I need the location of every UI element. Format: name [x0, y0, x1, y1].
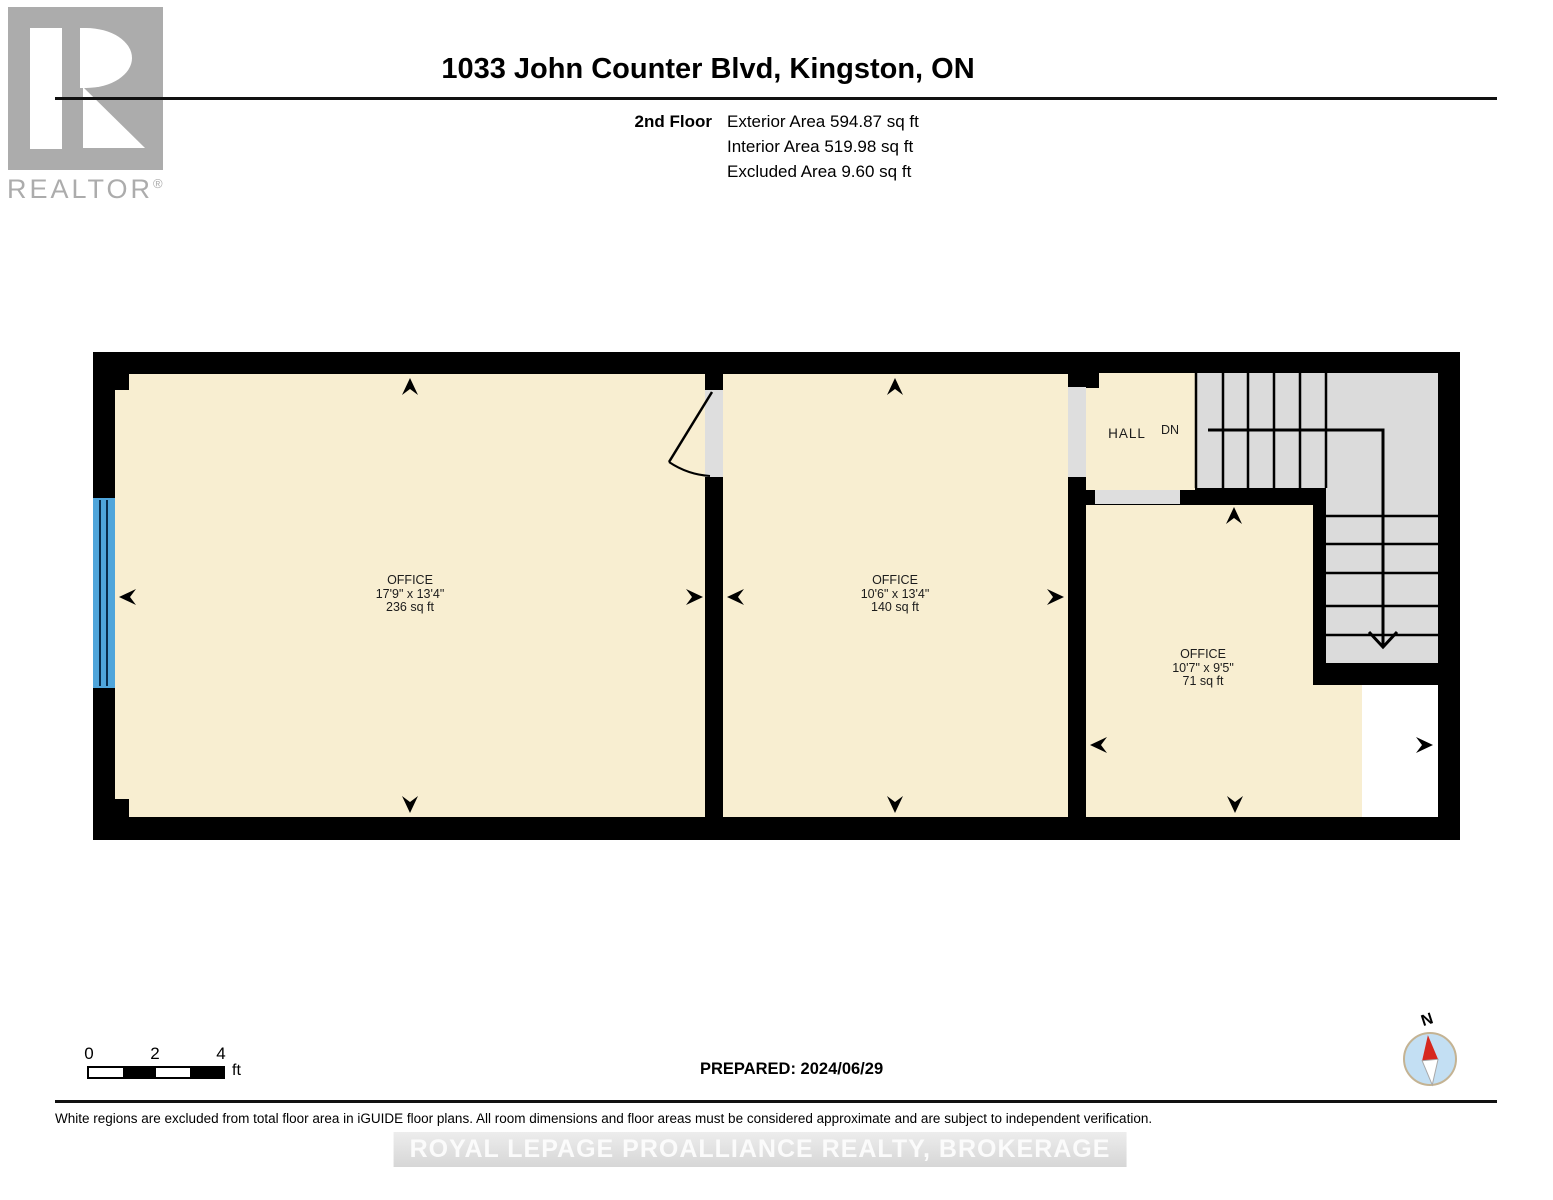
hall-label: HALL	[1108, 426, 1146, 441]
floor-plan: OFFICE 17'9" x 13'4" 236 sq ft OFFICE 10…	[93, 352, 1460, 840]
excluded-area: Excluded Area 9.60 sq ft	[727, 159, 919, 184]
room-dimensions: 10'7" x 9'5"	[1172, 662, 1234, 676]
footer-divider	[55, 1100, 1497, 1103]
stair-direction-line	[1208, 430, 1383, 645]
floor-label: 2nd Floor	[560, 109, 712, 134]
room-name: OFFICE	[861, 574, 930, 588]
window-pane-lines	[100, 500, 107, 686]
realtor-wordmark: REALTOR®	[7, 174, 163, 205]
scale-tick-4: 4	[216, 1044, 225, 1064]
scale-tick-0: 0	[84, 1044, 93, 1064]
office1-label: OFFICE 17'9" x 13'4" 236 sq ft	[376, 574, 445, 615]
area-summary: Exterior Area 594.87 sq ft Interior Area…	[727, 109, 919, 184]
office3-label: OFFICE 10'7" x 9'5" 71 sq ft	[1172, 648, 1234, 689]
room-area: 71 sq ft	[1172, 675, 1234, 689]
room-area: 140 sq ft	[861, 601, 930, 615]
registered-trademark: ®	[153, 176, 163, 191]
room-name: OFFICE	[376, 574, 445, 588]
exterior-area: Exterior Area 594.87 sq ft	[727, 109, 919, 134]
compass-north-label: N	[1419, 1010, 1435, 1030]
office2-label: OFFICE 10'6" x 13'4" 140 sq ft	[861, 574, 930, 615]
scale-tick-2: 2	[150, 1044, 159, 1064]
brokerage-watermark: ROYAL LEPAGE PROALLIANCE REALTY, BROKERA…	[394, 1132, 1127, 1167]
plan-linework	[93, 352, 1460, 840]
prepared-date: PREPARED: 2024/06/29	[700, 1060, 883, 1079]
header-divider	[55, 97, 1497, 100]
door-leaf	[669, 392, 712, 462]
page-title: 1033 John Counter Blvd, Kingston, ON	[441, 53, 974, 86]
compass-icon: N	[1398, 1006, 1464, 1090]
room-area: 236 sq ft	[376, 601, 445, 615]
scale-bar	[87, 1066, 225, 1079]
disclaimer-text: White regions are excluded from total fl…	[55, 1111, 1152, 1126]
stairs-dn-label: DN	[1161, 423, 1179, 437]
room-dimensions: 10'6" x 13'4"	[861, 588, 930, 602]
scale-unit-label: ft	[232, 1062, 241, 1080]
realtor-logo-icon	[8, 7, 163, 170]
realtor-r-glyph	[8, 7, 163, 170]
interior-area: Interior Area 519.98 sq ft	[727, 134, 919, 159]
floor-plan-page: REALTOR® 1033 John Counter Blvd, Kingsto…	[0, 0, 1553, 1200]
door-swing-arc	[669, 462, 710, 476]
room-dimensions: 17'9" x 13'4"	[376, 588, 445, 602]
room-name: OFFICE	[1172, 648, 1234, 662]
